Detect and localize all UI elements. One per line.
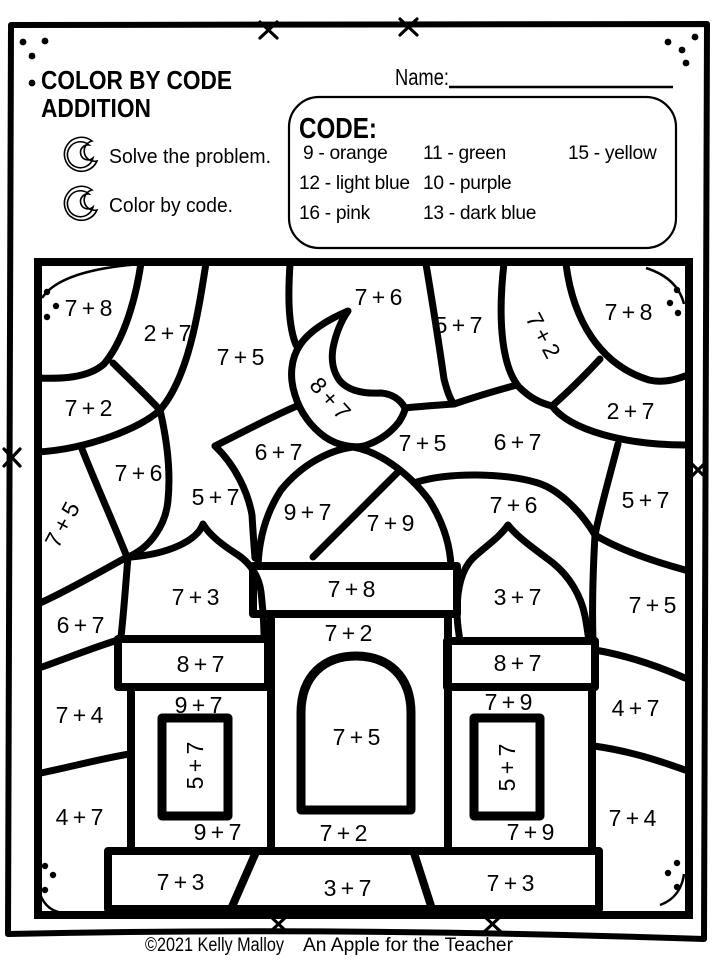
svg-text:Solve the problem.: Solve the problem. xyxy=(109,146,271,168)
svg-text:9 + 7: 9 + 7 xyxy=(175,692,222,718)
svg-text:7 + 5: 7 + 5 xyxy=(40,498,85,552)
svg-text:9 + 7: 9 + 7 xyxy=(194,819,241,845)
svg-text:5 + 7: 5 + 7 xyxy=(182,742,208,789)
svg-text:COLOR BY CODE: COLOR BY CODE xyxy=(41,65,232,95)
svg-text:5 + 7: 5 + 7 xyxy=(192,484,239,510)
svg-text:7 + 4: 7 + 4 xyxy=(56,702,104,728)
svg-text:6 + 7: 6 + 7 xyxy=(57,612,104,638)
svg-text:6 + 7: 6 + 7 xyxy=(494,429,541,455)
svg-text:7 + 5: 7 + 5 xyxy=(333,724,380,750)
svg-text:7 + 3: 7 + 3 xyxy=(487,870,534,896)
svg-text:7 + 2: 7 + 2 xyxy=(320,820,367,846)
svg-text:7 + 2: 7 + 2 xyxy=(521,308,566,362)
svg-text:7 + 5: 7 + 5 xyxy=(399,430,446,456)
svg-text:9 - orange: 9 - orange xyxy=(303,143,387,164)
svg-text:7 + 3: 7 + 3 xyxy=(157,869,204,895)
svg-text:7 + 2: 7 + 2 xyxy=(65,395,112,421)
svg-text:10 - purple: 10 - purple xyxy=(423,173,511,194)
svg-text:An Apple for the Teacher: An Apple for the Teacher xyxy=(303,935,514,956)
svg-text:ADDITION: ADDITION xyxy=(41,93,151,123)
svg-text:6 + 7: 6 + 7 xyxy=(255,439,302,465)
svg-text:4 + 7: 4 + 7 xyxy=(56,804,103,830)
svg-text:7 + 8: 7 + 8 xyxy=(605,299,652,325)
svg-text:11 - green: 11 - green xyxy=(423,143,506,164)
svg-text:7 + 5: 7 + 5 xyxy=(629,592,676,618)
svg-text:12 - light blue: 12 - light blue xyxy=(299,173,410,194)
svg-text:7 + 6: 7 + 6 xyxy=(115,460,162,486)
svg-text:7 + 4: 7 + 4 xyxy=(609,805,657,831)
svg-text:13 - dark blue: 13 - dark blue xyxy=(423,203,536,224)
svg-text:2 + 7: 2 + 7 xyxy=(144,320,191,346)
svg-text:5 + 7: 5 + 7 xyxy=(494,744,520,791)
svg-text:8 + 7: 8 + 7 xyxy=(494,650,541,676)
svg-text:5 + 7: 5 + 7 xyxy=(622,487,669,513)
svg-text:15 - yellow: 15 - yellow xyxy=(568,143,657,164)
svg-text:4 + 7: 4 + 7 xyxy=(612,695,659,721)
svg-text:16 - pink: 16 - pink xyxy=(299,203,371,224)
svg-text:7 + 9: 7 + 9 xyxy=(367,510,414,536)
svg-text:7 + 8: 7 + 8 xyxy=(328,576,375,602)
svg-text:3 + 7: 3 + 7 xyxy=(494,584,541,610)
svg-text:7 + 2: 7 + 2 xyxy=(325,620,372,646)
svg-text:CODE:: CODE: xyxy=(299,113,377,145)
svg-text:8 + 7: 8 + 7 xyxy=(305,372,356,424)
svg-text:7 + 3: 7 + 3 xyxy=(172,584,219,610)
svg-text:3 + 7: 3 + 7 xyxy=(324,875,371,901)
svg-text:7 + 6: 7 + 6 xyxy=(355,284,402,310)
svg-text:©2021 Kelly Malloy: ©2021 Kelly Malloy xyxy=(145,935,284,956)
svg-text:Color by code.: Color by code. xyxy=(109,195,233,217)
svg-text:5 + 7: 5 + 7 xyxy=(435,312,482,338)
svg-text:2 + 7: 2 + 7 xyxy=(607,398,654,424)
svg-text:7 + 9: 7 + 9 xyxy=(485,689,532,715)
svg-text:7 + 8: 7 + 8 xyxy=(65,295,112,321)
svg-text:7 + 9: 7 + 9 xyxy=(507,819,554,845)
svg-text:9 + 7: 9 + 7 xyxy=(284,499,331,525)
svg-text:Name:: Name: xyxy=(395,64,449,90)
svg-text:7 + 5: 7 + 5 xyxy=(217,344,264,370)
svg-text:7 + 6: 7 + 6 xyxy=(490,492,537,518)
svg-text:8 + 7: 8 + 7 xyxy=(177,651,224,677)
